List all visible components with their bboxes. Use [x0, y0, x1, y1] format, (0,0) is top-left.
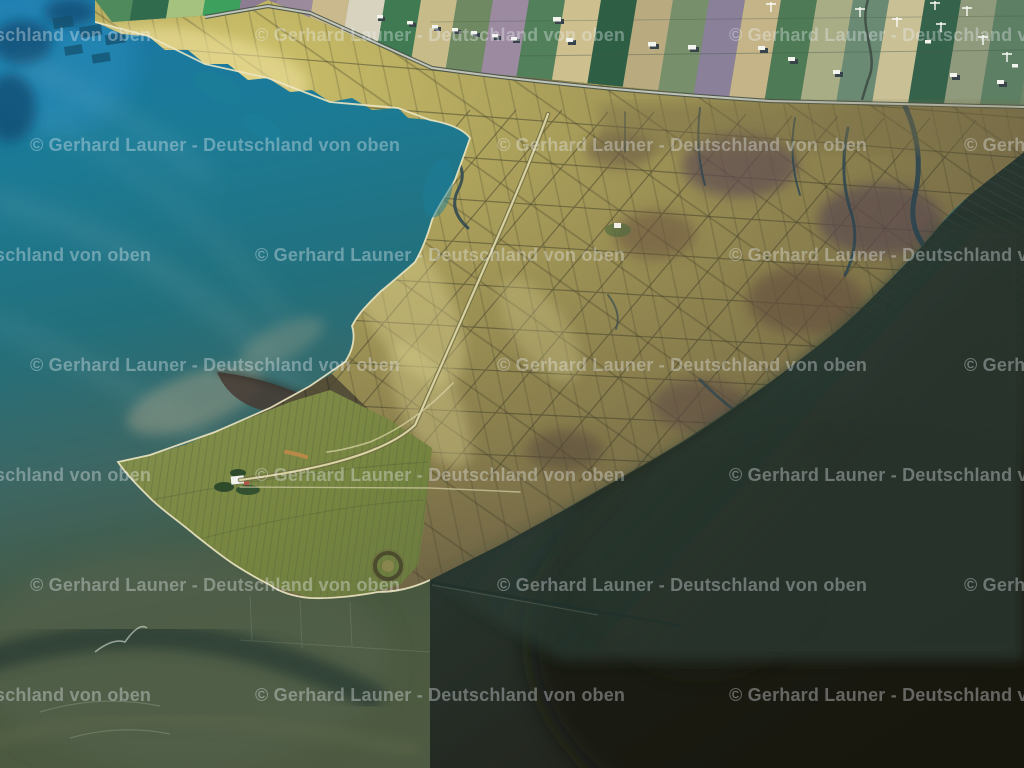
aerial-photo: [0, 0, 1024, 768]
marsh-hut: [605, 223, 631, 237]
ring-mound: [372, 550, 404, 582]
aerial-photo-stage: © Gerhard Launer - Deutschland von oben©…: [0, 0, 1024, 768]
